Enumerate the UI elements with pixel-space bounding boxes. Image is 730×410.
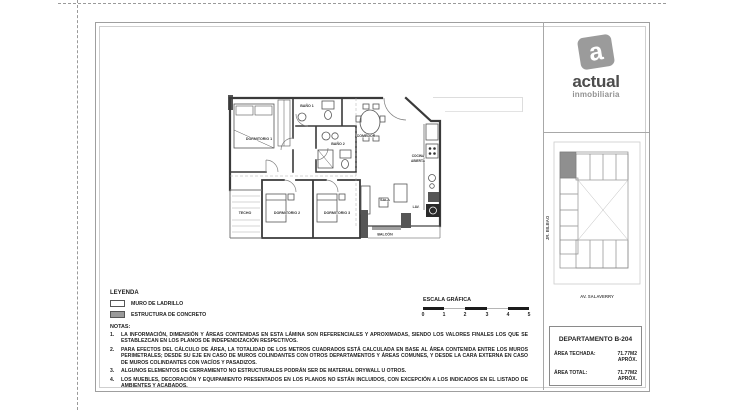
floorplan-sheet: { "brand": { "logo_letter": "a", "name":… xyxy=(0,0,730,410)
furniture xyxy=(234,100,440,222)
scale-title: ESCALA GRÁFICA xyxy=(423,297,529,303)
legend-title: LEYENDA xyxy=(110,290,410,296)
room-label-bano1: BAÑO 1 xyxy=(300,103,314,108)
scale-bar xyxy=(423,307,529,310)
highlighted-unit xyxy=(560,152,576,178)
room-labels: DORMITORIO 1 BAÑO 1 BAÑO 2 COMEDOR COCIN… xyxy=(239,103,426,237)
area-label: ÁREA TOTAL: xyxy=(554,370,600,382)
area-value: 71.77M2 APRÓX. xyxy=(600,370,637,382)
street-label-bottom: AV. SALAVERRY xyxy=(580,294,614,299)
room-label-lav: LAV. xyxy=(413,205,420,209)
brand-subtitle: inmobiliaria xyxy=(545,90,647,100)
room-label-comedor: COMEDOR xyxy=(357,134,376,138)
room-label-dormitorio1: DORMITORIO 1 xyxy=(246,137,272,141)
note-row: 4. LOS MUEBLES, DECORACIÓN Y EQUIPAMIENT… xyxy=(110,377,538,391)
scale-tick: 4 xyxy=(507,312,510,318)
logo-letter: a xyxy=(587,39,605,66)
legend-label: MURO DE LADRILLO xyxy=(131,301,183,307)
legend-item-brick: MURO DE LADRILLO xyxy=(110,300,410,307)
note-number: 1. xyxy=(110,332,121,346)
area-row: ÁREA TECHADA: 71.77M2 APRÓX. xyxy=(554,351,637,363)
note-row: 2. PARA EFECTOS DEL CÁLCULO DE ÁREA, LA … xyxy=(110,347,538,367)
note-number: 4. xyxy=(110,377,121,391)
fold-mark-top xyxy=(58,3,666,4)
scale-tick: 1 xyxy=(443,312,446,318)
graphic-scale: ESCALA GRÁFICA 0 1 2 3 4 5 xyxy=(423,297,529,319)
room-label-techo: TECHO xyxy=(239,211,252,215)
street-label-left: JR. BILBAO xyxy=(546,215,550,240)
brick-swatch-icon xyxy=(110,300,125,307)
title-block: DEPARTAMENTO B-204 ÁREA TECHADA: 71.77M2… xyxy=(549,326,642,386)
room-label-sala: SALA xyxy=(380,198,390,202)
logo-panel-divider xyxy=(543,132,649,133)
concrete-swatch-icon xyxy=(110,311,125,318)
room-label-dormitorio3: DORMITORIO 3 xyxy=(324,211,350,215)
concrete-columns xyxy=(228,95,411,238)
note-number: 2. xyxy=(110,347,121,367)
brand-panel: a actual inmobiliaria xyxy=(545,34,647,130)
area-label: ÁREA TECHADA: xyxy=(554,351,600,363)
note-row: 1. LA INFORMACIÓN, DIMENSIÓN Y ÁREAS CON… xyxy=(110,332,538,346)
room-label-dormitorio2: DORMITORIO 2 xyxy=(274,211,300,215)
scale-tick: 2 xyxy=(464,312,467,318)
room-label-bano2: BAÑO 2 xyxy=(331,141,345,146)
scale-tick: 0 xyxy=(422,312,425,318)
note-number: 3. xyxy=(110,368,121,375)
legend-label: ESTRUCTURA DE CONCRETO xyxy=(131,312,206,318)
interior-walls xyxy=(230,98,356,172)
note-text: LOS MUEBLES, DECORACIÓN Y EQUIPAMIENTO P… xyxy=(121,377,528,391)
note-text: ALGUNOS ELEMENTOS DE CERRAMIENTO NO ESTR… xyxy=(121,368,528,375)
brand-name: actual xyxy=(545,73,647,90)
notes-title: NOTAS: xyxy=(110,324,538,330)
area-row: ÁREA TOTAL: 71.77M2 APRÓX. xyxy=(554,370,637,382)
legend-item-concrete: ESTRUCTURA DE CONCRETO xyxy=(110,311,410,318)
room-label-cocina-2: ABIERTA xyxy=(411,159,426,163)
brand-logo-icon: a xyxy=(577,34,616,71)
note-text: PARA EFECTOS DEL CÁLCULO DE ÁREA, LA TOT… xyxy=(121,347,528,367)
area-value: 71.77M2 APRÓX. xyxy=(600,351,637,363)
room-label-cocina-1: COCINA xyxy=(412,154,425,158)
site-key-map: JR. BILBAO AV. SALAVERRY xyxy=(546,138,644,310)
bedroom-block-walls xyxy=(262,180,360,238)
note-text: LA INFORMACIÓN, DIMENSIÓN Y ÁREAS CONTEN… xyxy=(121,332,528,346)
apartment-floor-plan: DORMITORIO 1 BAÑO 1 BAÑO 2 COMEDOR COCIN… xyxy=(222,92,470,244)
room-label-balcon: BALCÓN xyxy=(377,232,393,237)
scale-tick: 3 xyxy=(486,312,489,318)
fold-mark-left xyxy=(77,0,78,410)
legend: LEYENDA MURO DE LADRILLO ESTRUCTURA DE C… xyxy=(110,290,410,318)
right-column-divider xyxy=(543,22,544,390)
note-row: 3. ALGUNOS ELEMENTOS DE CERRAMIENTO NO E… xyxy=(110,368,538,375)
scale-ticks: 0 1 2 3 4 5 xyxy=(423,312,529,319)
apartment-title: DEPARTAMENTO B-204 xyxy=(550,336,641,343)
reference-line xyxy=(522,97,523,112)
notes: NOTAS: 1. LA INFORMACIÓN, DIMENSIÓN Y ÁR… xyxy=(110,324,538,390)
scale-tick: 5 xyxy=(528,312,531,318)
